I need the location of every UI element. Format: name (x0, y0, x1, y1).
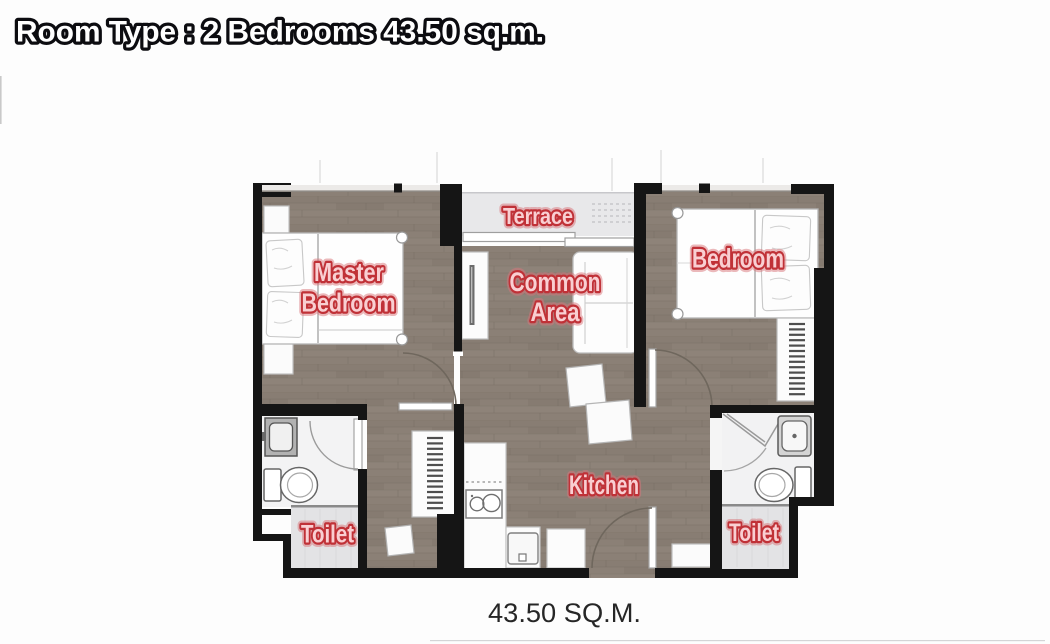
svg-text:Terrace: Terrace (503, 203, 573, 229)
svg-text:Bedroom: Bedroom (692, 244, 784, 274)
svg-text:Master: Master (314, 257, 384, 287)
svg-text:Kitchen: Kitchen (569, 470, 639, 500)
svg-text:Toilet: Toilet (729, 519, 780, 547)
svg-text:43.50 SQ.M.: 43.50 SQ.M. (488, 598, 641, 628)
svg-text:Toilet: Toilet (301, 521, 355, 549)
svg-text:Area: Area (531, 297, 580, 327)
svg-text:Room Type : 2 Bedrooms 43.50 s: Room Type : 2 Bedrooms 43.50 sq.m. (16, 16, 544, 49)
svg-text:Bedroom: Bedroom (302, 288, 396, 318)
svg-text:Common: Common (510, 267, 601, 297)
